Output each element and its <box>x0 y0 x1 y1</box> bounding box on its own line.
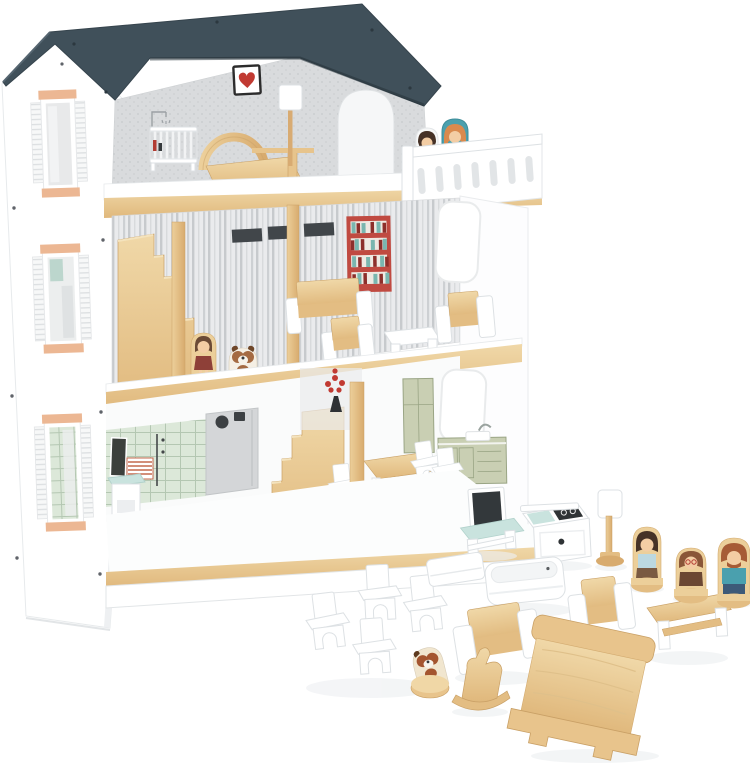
floor-lamp <box>596 490 624 567</box>
puppy-figure <box>410 645 449 698</box>
middle-window <box>32 243 92 354</box>
bottle-decal <box>153 140 157 151</box>
doll-father <box>717 538 750 609</box>
dollhouse-product-photo <box>0 0 750 766</box>
arched-doorway <box>338 90 394 181</box>
chalkboard <box>110 438 126 477</box>
peach-trim <box>38 89 76 99</box>
attic-room <box>104 56 542 218</box>
heart-picture <box>233 65 260 94</box>
gable-window <box>30 89 88 198</box>
scene-canvas <box>0 0 750 766</box>
middle-window <box>435 201 481 283</box>
laundry-door <box>206 408 258 495</box>
doll-grandmother <box>674 548 708 604</box>
bathtub <box>484 556 566 606</box>
doll-mother <box>631 527 663 593</box>
ground-window <box>34 413 94 532</box>
